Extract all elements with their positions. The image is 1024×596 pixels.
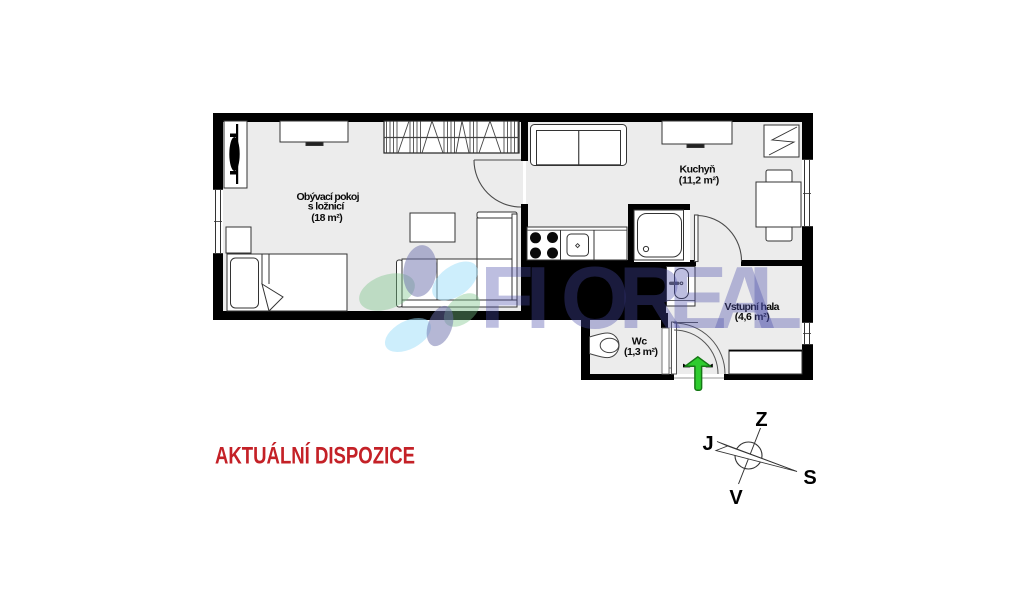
svg-text:J: J (702, 433, 713, 455)
svg-text:AKTUÁLNÍ DISPOZICE: AKTUÁLNÍ DISPOZICE (215, 442, 415, 470)
svg-text:s ložnicí: s ložnicí (308, 201, 346, 213)
svg-text:(1,3 m²): (1,3 m²) (624, 346, 658, 358)
svg-text:(11,2 m²): (11,2 m²) (679, 175, 720, 187)
svg-text:I: I (526, 248, 550, 347)
svg-text:V: V (729, 487, 743, 509)
svg-text:Z: Z (755, 409, 767, 431)
svg-text:S: S (803, 467, 816, 489)
svg-text:(18 m²): (18 m²) (311, 212, 343, 224)
svg-text:L: L (749, 248, 803, 347)
